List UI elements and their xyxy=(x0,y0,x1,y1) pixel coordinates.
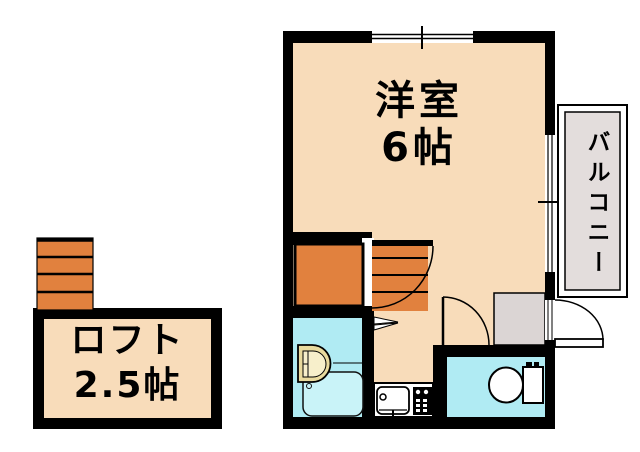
loft-label: ロフト 2.5帖 xyxy=(44,318,211,408)
stair-closet-block xyxy=(295,238,433,311)
front-door-leaf xyxy=(555,339,603,347)
stove-burner xyxy=(424,390,428,394)
closet-box xyxy=(295,244,363,306)
main-room-size: 6帖 xyxy=(293,125,545,172)
stove-burner xyxy=(416,390,420,394)
loft-name: ロフト xyxy=(44,318,211,363)
entrance-area xyxy=(494,293,545,345)
toilet-tank xyxy=(523,367,543,403)
stove-grid xyxy=(423,404,427,407)
stove-icon xyxy=(413,387,432,415)
stair-door-leaf xyxy=(372,240,433,246)
wall-bottom xyxy=(283,417,555,429)
front-door xyxy=(545,300,603,347)
stove-grid xyxy=(423,409,427,412)
toilet-icon xyxy=(489,368,523,403)
stove-grid xyxy=(416,399,420,402)
balcony-label: バルコニー xyxy=(579,117,613,293)
wall-left xyxy=(283,31,293,429)
wall-bathroom-top xyxy=(283,306,372,318)
wall-toilet-top xyxy=(433,345,555,357)
loft-size: 2.5帖 xyxy=(44,363,211,408)
kitchen xyxy=(374,383,433,417)
main-room-label: 洋室 6帖 xyxy=(293,78,545,172)
faucet-icon xyxy=(380,394,386,400)
front-door-opening xyxy=(545,300,555,340)
wall-bathroom-right xyxy=(362,306,374,417)
stove-grid xyxy=(423,399,427,402)
window-balcony-opening xyxy=(545,135,555,272)
front-door-swing-arc xyxy=(555,300,603,340)
main-room-name: 洋室 xyxy=(293,78,545,125)
toilet-button xyxy=(526,362,532,368)
floor-plan: 洋室 6帖 ロフト 2.5帖 バルコニー xyxy=(0,0,640,452)
toilet-button xyxy=(534,362,539,368)
stove-grid xyxy=(416,409,420,412)
stove-grid xyxy=(416,404,420,407)
